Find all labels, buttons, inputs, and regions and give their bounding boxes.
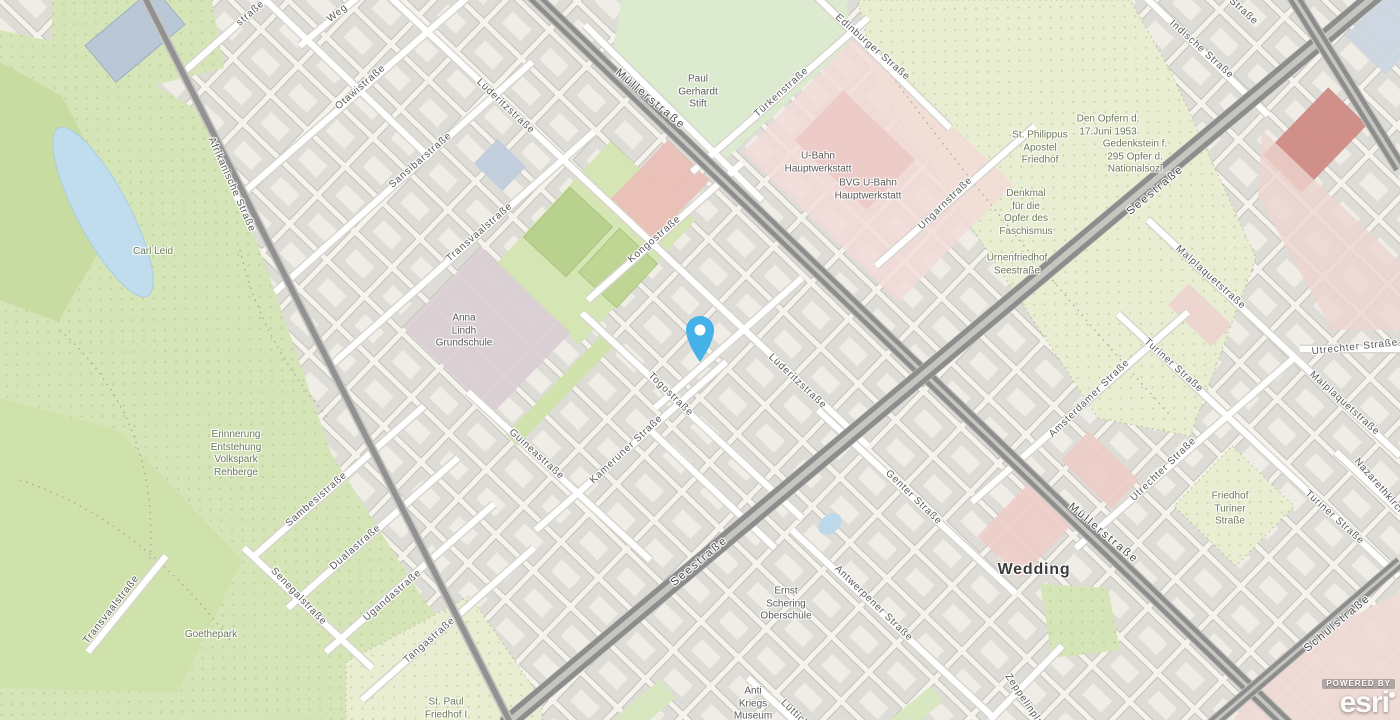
esri-logo[interactable]: esri (1340, 686, 1389, 719)
attribution: POWERED BY esri (1322, 674, 1395, 720)
esri-logo-dot (1389, 692, 1395, 698)
location-pin[interactable] (681, 314, 719, 364)
map-canvas[interactable]: Müllerstraße Müllerstraße Seestraße Sees… (0, 0, 1400, 720)
